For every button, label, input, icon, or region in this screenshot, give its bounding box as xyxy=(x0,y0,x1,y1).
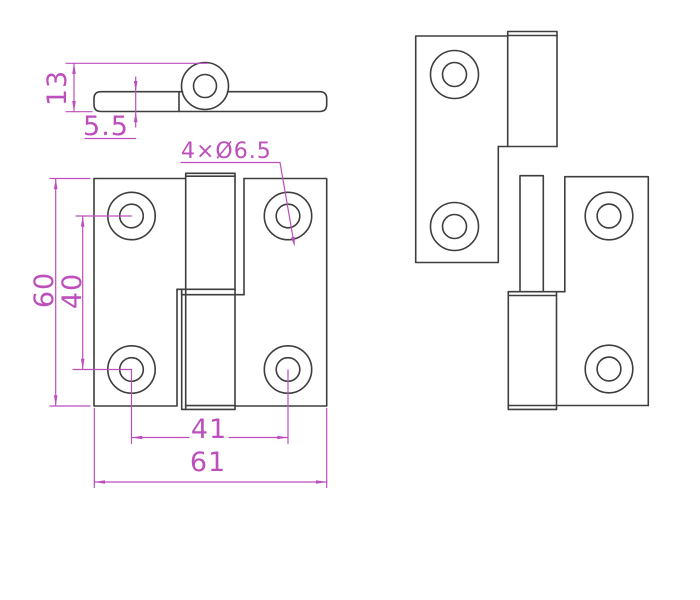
hole-inner-circle xyxy=(443,215,467,239)
lower-leaf-hole-top xyxy=(585,192,633,240)
hole-outer-circle xyxy=(585,192,633,240)
dim-text-40: 40 xyxy=(57,273,88,309)
front-hole-top-right xyxy=(264,192,311,239)
dim-text-5-5: 5.5 xyxy=(83,111,129,142)
front-right-plate-outline xyxy=(235,179,327,407)
arrowhead xyxy=(81,359,85,370)
arrowhead xyxy=(316,480,327,484)
upper-leaf-plate-outline xyxy=(416,36,508,263)
hole-callout-text: 4×Ø6.5 xyxy=(181,139,272,164)
upper-leaf-sleeve xyxy=(508,32,557,147)
separated-leaves-view xyxy=(416,32,649,410)
dim-text-60: 60 xyxy=(29,272,60,308)
arrowhead xyxy=(134,112,138,123)
dim-hole-callout: 4×Ø6.5 xyxy=(181,139,295,247)
arrowhead xyxy=(291,237,295,247)
hole-outer-circle xyxy=(431,51,479,99)
hole-outer-circle xyxy=(264,192,311,239)
assembled-front-view xyxy=(94,173,327,409)
dim-leaf-thickness: 5.5 xyxy=(83,77,137,142)
dim-text-41: 41 xyxy=(191,414,227,445)
upper-leaf-hole-bottom xyxy=(431,203,479,251)
arrowhead xyxy=(132,436,143,440)
side-profile-view xyxy=(94,63,327,112)
dim-text-13: 13 xyxy=(42,70,73,106)
side-knuckle-pin-circle xyxy=(194,75,217,98)
hole-outer-circle xyxy=(585,345,633,393)
drawing-canvas: 13 5.5 xyxy=(0,0,700,600)
hole-outer-circle xyxy=(431,203,479,251)
upper-leaf xyxy=(416,32,557,263)
hinge-technical-drawing: 13 5.5 xyxy=(0,0,700,600)
dim-text-61: 61 xyxy=(190,447,226,478)
arrowhead xyxy=(54,395,58,406)
hole-inner-circle xyxy=(597,357,621,381)
upper-leaf-hole-top xyxy=(431,51,479,99)
side-knuckle-outer-circle xyxy=(182,63,229,110)
arrowhead xyxy=(277,436,288,440)
hole-inner-circle xyxy=(443,63,467,87)
lower-leaf-pin xyxy=(520,176,543,292)
lower-leaf-plate-outline xyxy=(565,177,649,406)
arrowhead xyxy=(81,216,85,227)
arrowhead xyxy=(54,179,58,190)
lower-leaf-hole-bottom xyxy=(585,345,633,393)
front-upper-sleeve xyxy=(186,173,235,294)
lower-leaf xyxy=(508,176,648,410)
dim-hole-spacing-horizontal: 41 xyxy=(132,370,289,445)
arrowhead xyxy=(134,81,138,92)
hole-inner-circle xyxy=(597,204,621,228)
arrowhead xyxy=(94,480,105,484)
